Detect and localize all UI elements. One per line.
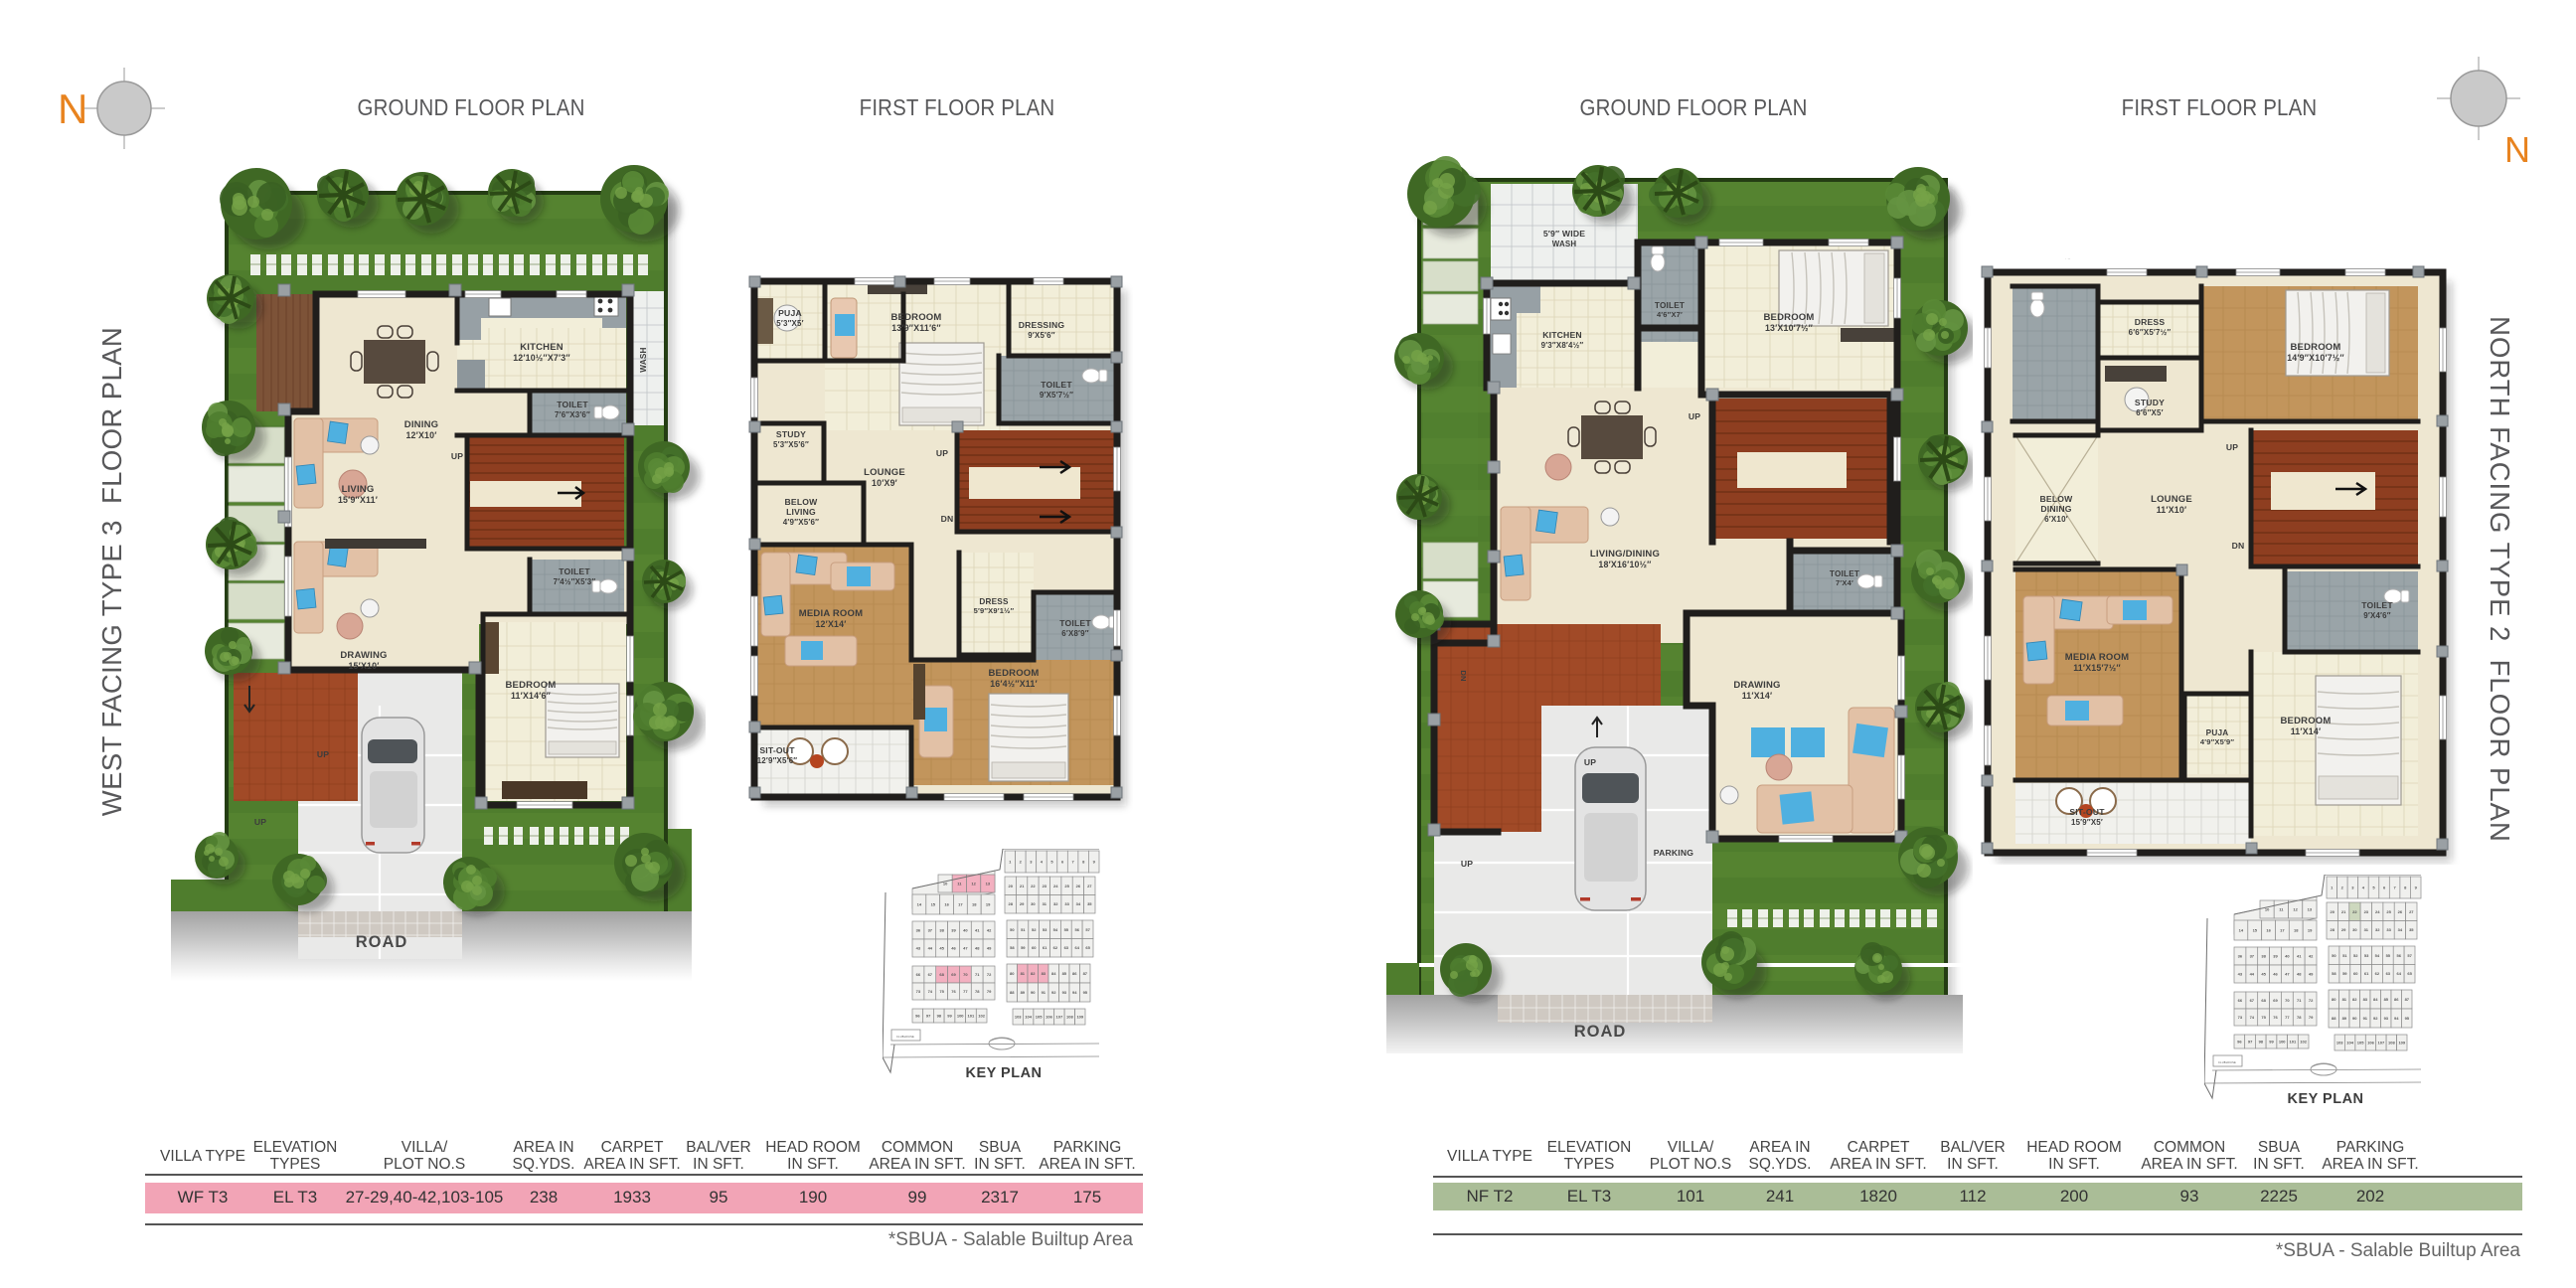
svg-text:BEDROOM: BEDROOM	[2280, 716, 2331, 726]
svg-text:104: 104	[2346, 1041, 2353, 1046]
svg-text:66: 66	[916, 972, 921, 977]
svg-text:71: 71	[975, 972, 980, 977]
svg-text:65: 65	[1085, 945, 1090, 950]
svg-text:32: 32	[2375, 927, 2380, 932]
svg-text:103: 103	[1015, 1015, 1022, 1020]
svg-text:12′X10′: 12′X10′	[405, 430, 436, 440]
svg-text:24: 24	[1053, 884, 1058, 888]
svg-text:71: 71	[2297, 998, 2302, 1003]
svg-text:TOILET: TOILET	[1041, 380, 1072, 390]
svg-text:74: 74	[928, 989, 933, 994]
svg-text:STUDY: STUDY	[776, 429, 806, 439]
svg-text:48: 48	[975, 946, 980, 951]
svg-text:78: 78	[2297, 1015, 2302, 1020]
svg-text:85: 85	[1062, 971, 1067, 976]
svg-text:108: 108	[1066, 1015, 1073, 1020]
svg-text:12′9″X5′6″: 12′9″X5′6″	[757, 756, 798, 765]
svg-text:25: 25	[1064, 884, 1069, 888]
svg-text:82: 82	[2352, 997, 2357, 1002]
svg-text:68: 68	[939, 972, 944, 977]
svg-text:23: 23	[1043, 884, 1047, 888]
svg-text:59: 59	[2342, 971, 2347, 976]
svg-text:10′X9′: 10′X9′	[872, 478, 897, 488]
svg-text:DRAWING: DRAWING	[1733, 680, 1780, 691]
svg-text:UP: UP	[317, 749, 329, 759]
svg-text:11′X14′: 11′X14′	[2291, 726, 2322, 736]
svg-text:106: 106	[2367, 1041, 2374, 1046]
svg-text:83: 83	[1042, 971, 1046, 976]
svg-text:100: 100	[2279, 1040, 2286, 1045]
svg-text:7′4½″X5′3″: 7′4½″X5′3″	[554, 577, 596, 586]
svg-text:20: 20	[1008, 884, 1013, 888]
svg-text:41: 41	[975, 928, 980, 933]
svg-text:80: 80	[2332, 997, 2336, 1002]
svg-text:15′9″X11′: 15′9″X11′	[338, 495, 378, 505]
svg-text:96: 96	[915, 1014, 920, 1019]
svg-text:58: 58	[1010, 945, 1015, 950]
svg-text:87: 87	[2405, 997, 2410, 1002]
svg-text:DRAWING: DRAWING	[340, 650, 387, 661]
svg-text:64: 64	[1074, 945, 1079, 950]
svg-text:107: 107	[1056, 1015, 1063, 1020]
svg-text:14: 14	[2239, 928, 2244, 933]
svg-text:63: 63	[2386, 971, 2391, 976]
svg-text:81: 81	[2342, 997, 2347, 1002]
svg-text:11′X14′: 11′X14′	[1742, 691, 1773, 701]
svg-text:7′X4′: 7′X4′	[1836, 578, 1853, 587]
svg-text:93: 93	[1062, 990, 1067, 995]
svg-text:DN: DN	[2232, 541, 2245, 551]
svg-text:93: 93	[2384, 1016, 2389, 1021]
svg-text:22: 22	[1031, 884, 1036, 888]
svg-text:KITCHEN: KITCHEN	[1542, 330, 1582, 340]
svg-text:72: 72	[987, 972, 992, 977]
svg-text:16: 16	[2266, 928, 2271, 933]
svg-text:73: 73	[916, 989, 921, 994]
svg-text:86: 86	[2394, 997, 2399, 1002]
svg-text:KITCHEN: KITCHEN	[520, 342, 563, 353]
svg-text:UP: UP	[254, 817, 266, 827]
svg-text:TOILET: TOILET	[1830, 569, 1859, 578]
svg-text:35: 35	[1087, 901, 1092, 906]
svg-text:87: 87	[1083, 971, 1088, 976]
svg-text:59: 59	[1021, 945, 1026, 950]
svg-text:80: 80	[1010, 971, 1015, 976]
svg-text:DINING: DINING	[2040, 504, 2071, 514]
svg-text:18′X16′10½″: 18′X16′10½″	[1598, 560, 1652, 569]
svg-text:25: 25	[2386, 909, 2391, 914]
svg-text:62: 62	[2375, 971, 2380, 976]
svg-text:79: 79	[987, 989, 992, 994]
svg-text:39: 39	[951, 928, 956, 933]
svg-text:101: 101	[968, 1014, 975, 1019]
svg-text:54: 54	[1053, 927, 1058, 932]
svg-text:46: 46	[2273, 972, 2278, 977]
svg-text:43: 43	[916, 946, 921, 951]
svg-text:69: 69	[2273, 998, 2278, 1003]
svg-text:DRESS: DRESS	[979, 597, 1009, 606]
svg-text:6′6″X5′7½″: 6′6″X5′7½″	[2129, 328, 2172, 337]
svg-text:89: 89	[2342, 1016, 2347, 1021]
svg-text:79: 79	[2309, 1015, 2314, 1020]
svg-text:4′6″X7′: 4′6″X7′	[1657, 310, 1683, 319]
svg-text:42: 42	[987, 928, 992, 933]
svg-text:63: 63	[1064, 945, 1069, 950]
svg-text:47: 47	[2285, 972, 2290, 977]
svg-text:9′3″X8′4½″: 9′3″X8′4½″	[1541, 341, 1584, 350]
svg-text:13: 13	[2308, 907, 2313, 912]
svg-text:KEY PLAN: KEY PLAN	[965, 1065, 1042, 1081]
svg-text:CLUBHOUSE: CLUBHOUSE	[896, 1035, 914, 1039]
svg-text:60: 60	[1032, 945, 1037, 950]
svg-text:52: 52	[1032, 927, 1037, 932]
svg-text:89: 89	[1021, 990, 1026, 995]
svg-text:77: 77	[963, 989, 968, 994]
svg-text:11′X14′6″: 11′X14′6″	[511, 691, 552, 701]
svg-text:50: 50	[2332, 953, 2336, 958]
svg-text:44: 44	[928, 946, 933, 951]
svg-text:24: 24	[2375, 909, 2380, 914]
svg-text:26: 26	[2398, 909, 2403, 914]
svg-text:76: 76	[2273, 1015, 2278, 1020]
svg-text:9′X5′7½″: 9′X5′7½″	[1040, 391, 1073, 400]
svg-text:38: 38	[939, 928, 944, 933]
svg-text:KEY PLAN: KEY PLAN	[2287, 1091, 2363, 1107]
svg-text:75: 75	[939, 989, 944, 994]
svg-text:MEDIA ROOM: MEDIA ROOM	[2065, 652, 2129, 663]
svg-text:86: 86	[1072, 971, 1077, 976]
svg-text:19: 19	[986, 902, 991, 907]
svg-text:99: 99	[2269, 1040, 2274, 1045]
svg-text:13′9″X11′6″: 13′9″X11′6″	[891, 323, 941, 333]
svg-text:66: 66	[2238, 998, 2243, 1003]
svg-text:14: 14	[917, 902, 922, 907]
svg-text:83: 83	[2363, 997, 2368, 1002]
svg-text:55: 55	[2386, 953, 2391, 958]
svg-text:49: 49	[2309, 972, 2314, 977]
svg-text:43: 43	[2238, 972, 2243, 977]
svg-text:92: 92	[2373, 1016, 2378, 1021]
svg-text:DN: DN	[941, 514, 954, 524]
svg-text:91: 91	[1042, 990, 1046, 995]
svg-text:WASH: WASH	[639, 347, 648, 372]
svg-text:100: 100	[957, 1014, 964, 1019]
svg-text:57: 57	[2407, 953, 2412, 958]
svg-text:45: 45	[939, 946, 944, 951]
svg-text:67: 67	[928, 972, 933, 977]
svg-text:20: 20	[2330, 909, 2334, 914]
svg-text:5′6″X10′7½″: 5′6″X10′7½″	[2027, 258, 2074, 260]
svg-text:BEDROOM: BEDROOM	[2290, 342, 2340, 353]
svg-text:6′X8′9″: 6′X8′9″	[1061, 629, 1088, 638]
svg-text:9′X4′6″: 9′X4′6″	[2363, 611, 2390, 620]
svg-text:BEDROOM: BEDROOM	[1763, 312, 1814, 323]
svg-text:TOILET: TOILET	[557, 400, 588, 409]
svg-text:95: 95	[1083, 990, 1088, 995]
svg-text:21: 21	[2341, 909, 2346, 914]
svg-text:UP: UP	[451, 451, 463, 461]
svg-text:37: 37	[2250, 954, 2255, 959]
svg-text:88: 88	[1010, 990, 1015, 995]
svg-text:69: 69	[951, 972, 956, 977]
svg-text:105: 105	[2357, 1041, 2364, 1046]
svg-text:5′9″X9′1½″: 5′9″X9′1½″	[974, 606, 1015, 615]
svg-text:44: 44	[2250, 972, 2255, 977]
svg-text:53: 53	[2364, 953, 2369, 958]
svg-text:104: 104	[1025, 1015, 1032, 1020]
svg-text:61: 61	[2364, 971, 2369, 976]
svg-text:UP: UP	[936, 448, 948, 458]
svg-text:99: 99	[947, 1014, 952, 1019]
svg-text:84: 84	[1051, 971, 1056, 976]
svg-text:14′9″X10′7½″: 14′9″X10′7½″	[2287, 353, 2344, 363]
svg-text:SIT-OUT: SIT-OUT	[2069, 807, 2105, 817]
svg-text:73: 73	[2238, 1015, 2243, 1020]
svg-text:97: 97	[926, 1014, 931, 1019]
svg-text:21: 21	[1020, 884, 1025, 888]
svg-text:11′X10′: 11′X10′	[2157, 505, 2187, 515]
svg-text:105: 105	[1036, 1015, 1043, 1020]
svg-text:5′3″X5′: 5′3″X5′	[776, 319, 803, 328]
svg-text:LIVING: LIVING	[786, 507, 816, 517]
svg-text:90: 90	[2352, 1016, 2357, 1021]
svg-text:UP: UP	[2226, 442, 2238, 452]
svg-text:36: 36	[916, 928, 921, 933]
svg-text:35: 35	[2409, 927, 2414, 932]
svg-text:56: 56	[1074, 927, 1079, 932]
svg-text:15: 15	[931, 902, 936, 907]
svg-text:17: 17	[958, 902, 963, 907]
svg-text:12′X14′: 12′X14′	[815, 619, 846, 629]
svg-text:6′6″X5′: 6′6″X5′	[2136, 408, 2163, 417]
svg-text:ROAD: ROAD	[356, 933, 408, 951]
svg-text:LOUNGE: LOUNGE	[2151, 494, 2192, 505]
svg-text:34: 34	[2398, 927, 2403, 932]
svg-text:27: 27	[2409, 909, 2414, 914]
svg-text:51: 51	[1021, 927, 1026, 932]
svg-text:95: 95	[2405, 1016, 2410, 1021]
svg-text:15′X10′: 15′X10′	[348, 661, 379, 671]
svg-text:107: 107	[2378, 1041, 2385, 1046]
svg-text:26: 26	[1076, 884, 1081, 888]
svg-text:12: 12	[2293, 907, 2298, 912]
svg-text:60: 60	[2353, 971, 2358, 976]
svg-text:BEDROOM: BEDROOM	[988, 668, 1039, 679]
svg-text:PUJA: PUJA	[2206, 728, 2229, 737]
svg-text:81: 81	[1021, 971, 1026, 976]
svg-text:48: 48	[2297, 972, 2302, 977]
svg-text:DINING: DINING	[404, 419, 438, 430]
svg-text:88: 88	[2332, 1016, 2336, 1021]
svg-text:56: 56	[2396, 953, 2401, 958]
svg-text:27: 27	[1087, 884, 1092, 888]
svg-text:90: 90	[1031, 990, 1036, 995]
svg-text:31: 31	[1043, 901, 1047, 906]
svg-text:57: 57	[1085, 927, 1090, 932]
svg-text:STUDY: STUDY	[2135, 398, 2165, 407]
svg-text:TOILET: TOILET	[559, 566, 590, 576]
svg-text:CLUBHOUSE: CLUBHOUSE	[2218, 1060, 2236, 1064]
svg-text:96: 96	[2237, 1040, 2242, 1045]
svg-text:PARKING: PARKING	[1654, 848, 1694, 858]
svg-text:UP: UP	[1584, 757, 1596, 767]
svg-text:106: 106	[1046, 1015, 1052, 1020]
svg-text:37: 37	[928, 928, 933, 933]
svg-text:54: 54	[2375, 953, 2380, 958]
svg-text:18: 18	[972, 902, 977, 907]
svg-text:42: 42	[2309, 954, 2314, 959]
svg-text:46: 46	[951, 946, 956, 951]
svg-text:BEDROOM: BEDROOM	[890, 312, 941, 323]
svg-text:72: 72	[2309, 998, 2314, 1003]
svg-text:23: 23	[2364, 909, 2369, 914]
svg-text:77: 77	[2285, 1015, 2290, 1020]
svg-text:65: 65	[2407, 971, 2412, 976]
svg-text:29: 29	[2341, 927, 2346, 932]
svg-text:31: 31	[2364, 927, 2369, 932]
svg-text:41: 41	[2297, 954, 2302, 959]
svg-text:LIVING/DINING: LIVING/DINING	[1590, 549, 1660, 560]
svg-text:33: 33	[2386, 927, 2391, 932]
svg-text:17: 17	[2280, 928, 2285, 933]
svg-text:91: 91	[2363, 1016, 2368, 1021]
svg-text:7′6″X3′6″: 7′6″X3′6″	[555, 410, 590, 419]
svg-text:TOILET: TOILET	[1655, 301, 1685, 310]
svg-text:70: 70	[2285, 998, 2290, 1003]
svg-text:55: 55	[1064, 927, 1069, 932]
svg-text:78: 78	[975, 989, 980, 994]
svg-text:68: 68	[2261, 998, 2266, 1003]
svg-text:94: 94	[1072, 990, 1077, 995]
svg-text:DRESS: DRESS	[2135, 317, 2166, 327]
svg-text:15′9″X5′: 15′9″X5′	[2071, 818, 2103, 827]
svg-text:49: 49	[987, 946, 992, 951]
svg-text:28: 28	[2330, 927, 2334, 932]
svg-text:97: 97	[2248, 1040, 2253, 1045]
svg-text:94: 94	[2394, 1016, 2399, 1021]
svg-text:16′4½″X11′: 16′4½″X11′	[990, 679, 1038, 689]
svg-text:50: 50	[1010, 927, 1015, 932]
svg-text:13: 13	[986, 882, 991, 886]
svg-text:102: 102	[2300, 1040, 2307, 1045]
svg-text:39: 39	[2273, 954, 2278, 959]
svg-text:75: 75	[2261, 1015, 2266, 1020]
svg-text:9′X5′6″: 9′X5′6″	[1028, 331, 1054, 340]
svg-text:92: 92	[1051, 990, 1056, 995]
svg-text:22: 22	[2352, 909, 2357, 914]
svg-text:5′9″ WIDE: 5′9″ WIDE	[1543, 229, 1585, 239]
svg-text:DN: DN	[1459, 670, 1468, 681]
svg-text:ROAD: ROAD	[1574, 1023, 1627, 1041]
svg-text:BELOW: BELOW	[785, 497, 819, 507]
svg-text:TOILET: TOILET	[2361, 600, 2393, 610]
svg-text:74: 74	[2250, 1015, 2255, 1020]
svg-text:TOILET: TOILET	[1059, 618, 1091, 628]
svg-text:64: 64	[2396, 971, 2401, 976]
svg-text:109: 109	[2398, 1041, 2405, 1046]
svg-text:98: 98	[937, 1014, 942, 1019]
svg-text:DRESSING: DRESSING	[1019, 320, 1065, 330]
svg-text:18: 18	[2294, 928, 2299, 933]
svg-text:30: 30	[2352, 927, 2357, 932]
svg-text:LIVING: LIVING	[342, 484, 375, 495]
svg-text:13′X10′7½″: 13′X10′7½″	[1765, 323, 1814, 333]
svg-text:4′9″X5′6″: 4′9″X5′6″	[783, 518, 819, 527]
svg-text:40: 40	[2285, 954, 2290, 959]
svg-text:33: 33	[1064, 901, 1069, 906]
svg-text:BEDROOM: BEDROOM	[505, 680, 556, 691]
svg-text:16: 16	[944, 902, 949, 907]
svg-text:30: 30	[1031, 901, 1036, 906]
svg-text:19: 19	[2308, 928, 2313, 933]
svg-text:28: 28	[1008, 901, 1013, 906]
svg-text:76: 76	[951, 989, 956, 994]
svg-text:85: 85	[2384, 997, 2389, 1002]
svg-text:108: 108	[2388, 1041, 2395, 1046]
svg-text:84: 84	[2373, 997, 2378, 1002]
svg-text:38: 38	[2261, 954, 2266, 959]
svg-text:62: 62	[1053, 945, 1058, 950]
svg-text:61: 61	[1043, 945, 1047, 950]
svg-text:11′X15′7½″: 11′X15′7½″	[2073, 663, 2121, 673]
svg-text:36: 36	[2238, 954, 2243, 959]
svg-text:52: 52	[2353, 953, 2358, 958]
svg-text:40: 40	[963, 928, 968, 933]
svg-text:PUJA: PUJA	[778, 308, 802, 318]
svg-text:UP: UP	[1689, 411, 1700, 421]
svg-text:82: 82	[1031, 971, 1036, 976]
svg-text:12′10½″X7′3″: 12′10½″X7′3″	[513, 353, 570, 363]
svg-text:WASH: WASH	[1552, 240, 1577, 248]
svg-text:5′3″X5′6″: 5′3″X5′6″	[773, 440, 809, 449]
svg-text:34: 34	[1076, 901, 1081, 906]
svg-text:109: 109	[1076, 1015, 1083, 1020]
svg-text:67: 67	[2250, 998, 2255, 1003]
svg-text:103: 103	[2336, 1041, 2343, 1046]
svg-text:29: 29	[1020, 901, 1025, 906]
svg-text:51: 51	[2342, 953, 2347, 958]
svg-text:98: 98	[2259, 1040, 2264, 1045]
svg-text:SIT-OUT: SIT-OUT	[759, 745, 795, 755]
svg-text:4′9″X5′9″: 4′9″X5′9″	[2200, 737, 2234, 746]
svg-text:BELOW: BELOW	[2040, 494, 2074, 504]
svg-text:70: 70	[963, 972, 968, 977]
svg-text:6′X10′: 6′X10′	[2044, 515, 2068, 524]
svg-text:32: 32	[1053, 901, 1058, 906]
svg-text:101: 101	[2290, 1040, 2297, 1045]
svg-text:58: 58	[2332, 971, 2336, 976]
svg-text:LOUNGE: LOUNGE	[864, 467, 905, 478]
svg-text:12: 12	[971, 882, 976, 886]
svg-text:45: 45	[2261, 972, 2266, 977]
svg-text:UP: UP	[1461, 859, 1473, 869]
svg-text:47: 47	[963, 946, 968, 951]
svg-text:MEDIA ROOM: MEDIA ROOM	[799, 608, 863, 619]
svg-text:15: 15	[2253, 928, 2258, 933]
svg-text:53: 53	[1043, 927, 1047, 932]
svg-text:102: 102	[978, 1014, 985, 1019]
